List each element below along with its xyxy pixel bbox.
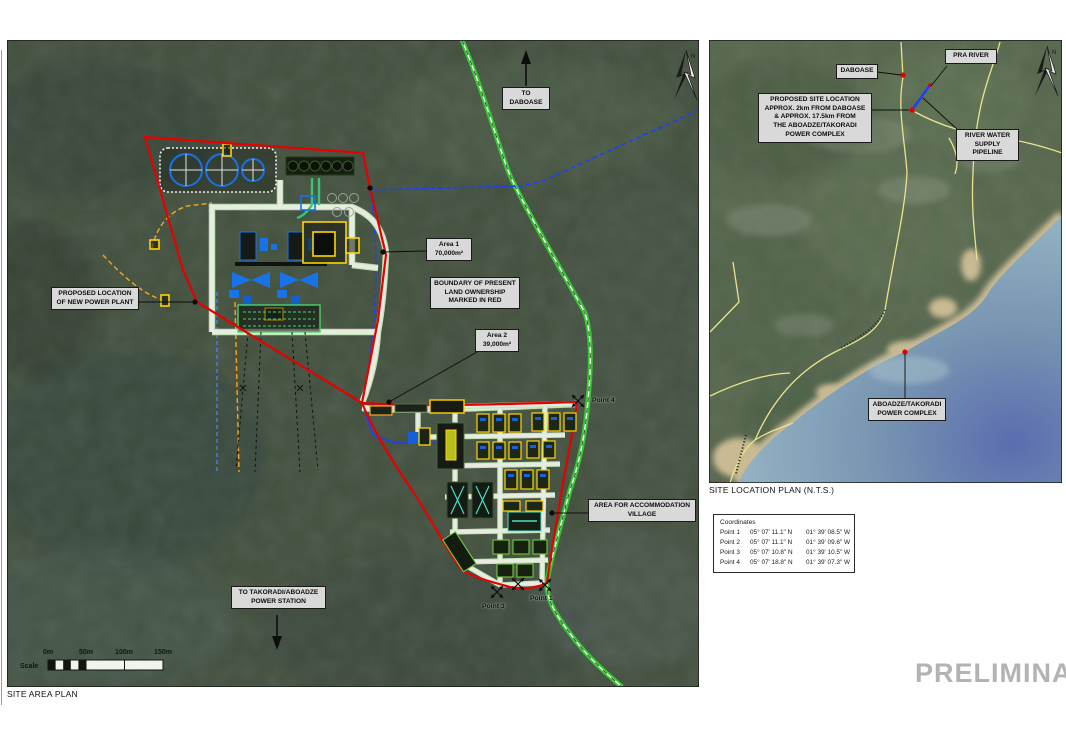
site-area-plan-caption: SITE AREA PLAN xyxy=(7,689,78,699)
bay-shallows xyxy=(869,356,949,384)
svg-text:100m: 100m xyxy=(115,649,133,656)
svg-text:0m: 0m xyxy=(43,649,53,656)
svg-text:150m: 150m xyxy=(154,649,172,656)
label-point3: Point 3 xyxy=(482,603,505,610)
label-aboadze: ABOADZE/TAKORADI POWER COMPLEX xyxy=(868,398,946,421)
label-area1: Area 1 70,000m² xyxy=(426,238,472,261)
svg-text:Scale: Scale xyxy=(20,663,38,670)
coordinates-title: Coordinates xyxy=(720,519,848,526)
longitude: 01° 39' 09.6" W xyxy=(806,538,858,548)
label-to-daboase: TO DABOASE xyxy=(502,87,550,110)
label-point4: Point 4 xyxy=(592,397,615,404)
site-area-plan-map: N Scale 0m 50m 100m 150m xyxy=(7,40,699,687)
label-proposed-site: PROPOSED SITE LOCATION APPROX. 2km FROM … xyxy=(758,93,872,143)
label-area2: Area 2 39,000m² xyxy=(475,329,519,352)
latitude: 05° 07' 11.1" N xyxy=(750,528,806,538)
longitude: 01° 39' 08.5" W xyxy=(806,528,858,538)
label-point1: Point 1 xyxy=(530,595,553,602)
table-row: Point 4 05° 07' 18.8" N 01° 39' 07.3" W xyxy=(720,558,848,568)
label-to-takoradi: TO TAKORADI/ABOADZE POWER STATION xyxy=(231,586,326,609)
label-daboase: DABOASE xyxy=(836,64,878,79)
preliminary-watermark: PRELIMINARY xyxy=(915,658,1066,689)
latitude: 05° 07' 11.1" N xyxy=(750,538,806,548)
label-boundary-note: BOUNDARY OF PRESENT LAND OWNERSHIP MARKE… xyxy=(430,277,520,309)
svg-text:50m: 50m xyxy=(79,649,93,656)
longitude: 01° 39' 10.5" W xyxy=(806,548,858,558)
label-pra-river: PRA RIVER xyxy=(945,49,997,64)
longitude: 01° 39' 07.3" W xyxy=(806,558,858,568)
table-row: Point 3 05° 07' 10.8" N 01° 39' 10.5" W xyxy=(720,548,848,558)
point-name: Point 2 xyxy=(720,538,750,548)
point-name: Point 3 xyxy=(720,548,750,558)
page-edge-line xyxy=(1,50,2,705)
site-location-plan-caption: SITE LOCATION PLAN (N.T.S.) xyxy=(709,485,834,495)
satellite-background xyxy=(7,40,699,687)
table-row: Point 1 05° 07' 11.1" N 01° 39' 08.5" W xyxy=(720,528,848,538)
latitude: 05° 07' 18.8" N xyxy=(750,558,806,568)
svg-text:N: N xyxy=(1052,50,1056,56)
latitude: 05° 07' 10.8" N xyxy=(750,548,806,558)
label-accommodation: AREA FOR ACCOMMODATION VILLAGE xyxy=(588,499,696,522)
svg-text:N: N xyxy=(691,54,695,60)
drawing-page: N Scale 0m 50m 100m 150m xyxy=(0,0,1066,735)
point-name: Point 4 xyxy=(720,558,750,568)
table-row: Point 2 05° 07' 11.1" N 01° 39' 09.6" W xyxy=(720,538,848,548)
coordinates-table: Coordinates Point 1 05° 07' 11.1" N 01° … xyxy=(713,514,855,573)
label-river-water: RIVER WATER SUPPLY PIPELINE xyxy=(956,129,1019,161)
tank-farm xyxy=(160,148,276,192)
label-proposed-location: PROPOSED LOCATION OF NEW POWER PLANT xyxy=(51,287,139,310)
point-name: Point 1 xyxy=(720,528,750,538)
